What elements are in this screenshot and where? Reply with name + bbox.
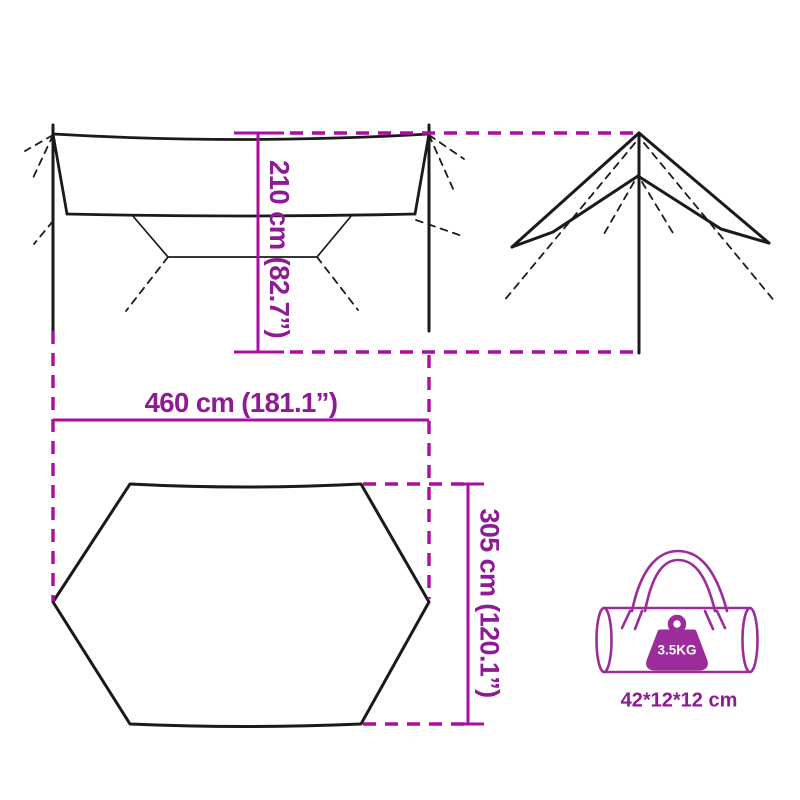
bag-weight-label: 3.5KG [657,643,696,658]
bag-size-label: 42*12*12 cm [621,690,738,713]
tarp-front-view [25,125,465,331]
width-dimension-label: 460 cm (181.1”) [145,387,338,419]
tarp-side-view [503,133,776,353]
height-dimension-label: 210 cm (82.7”) [263,160,295,338]
groundsheet-top-view [53,484,429,727]
product-dimension-diagram: 210 cm (82.7”) 460 cm (181.1”) 305 cm (1… [0,0,800,800]
depth-dimension-label: 305 cm (120.1”) [474,508,505,697]
front-guy-ropes [25,135,465,311]
diagram-lineart [0,0,800,800]
